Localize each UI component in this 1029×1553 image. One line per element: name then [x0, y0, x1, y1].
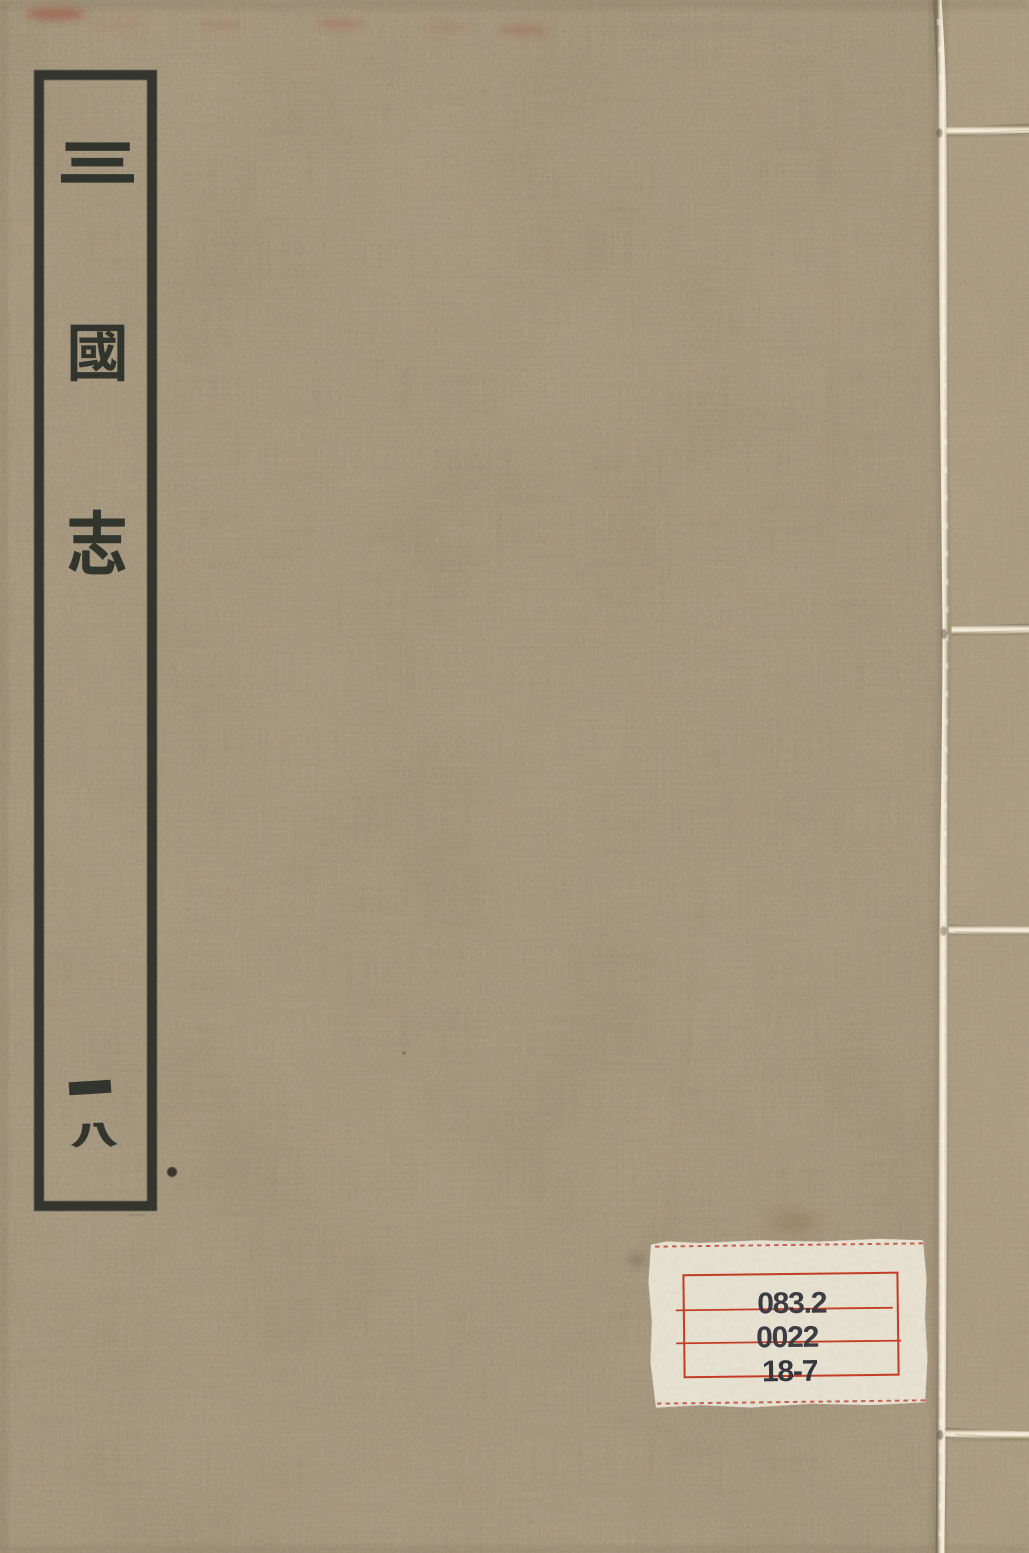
svg-text:0022: 0022 — [756, 1321, 819, 1355]
svg-text:18-7: 18-7 — [762, 1355, 818, 1389]
svg-text:083.2: 083.2 — [757, 1287, 827, 1321]
